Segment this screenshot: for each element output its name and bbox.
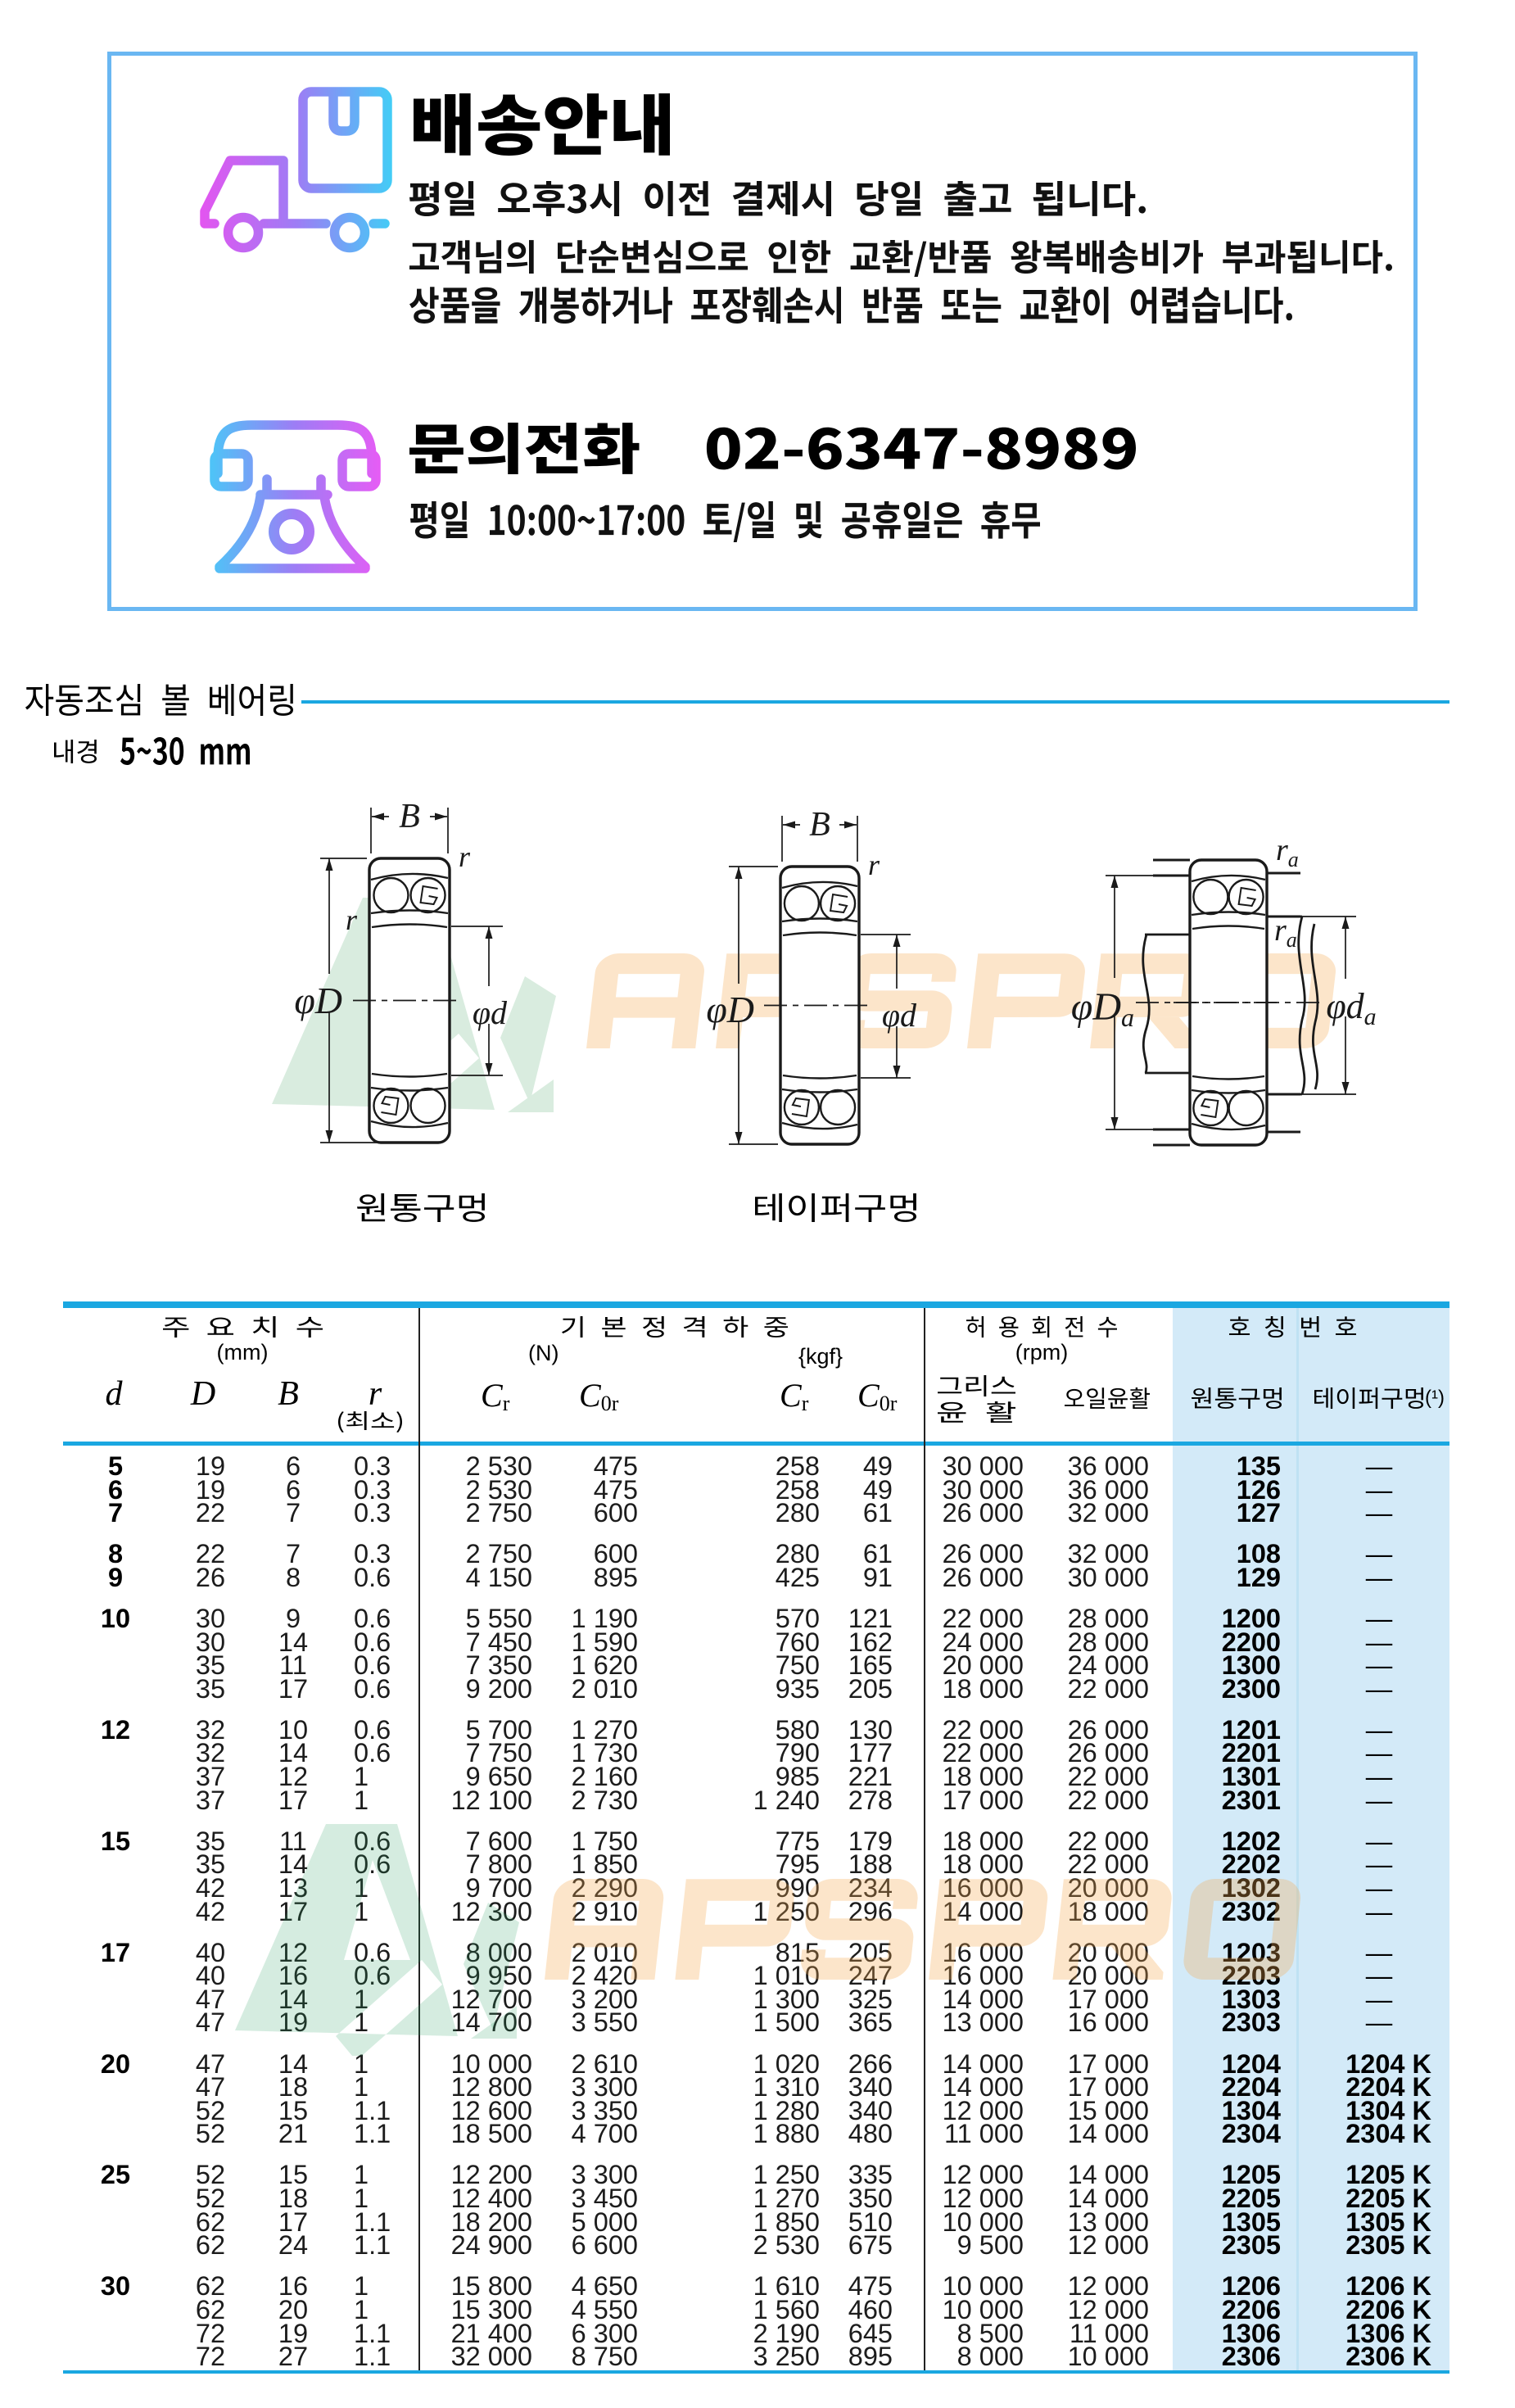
svg-text:ra: ra [1276,833,1299,871]
svg-text:r: r [459,840,471,873]
svg-text:φD: φD [294,980,342,1021]
svg-text:B: B [809,806,830,844]
svg-text:φD: φD [706,989,754,1030]
svg-text:ra: ra [1274,913,1297,952]
svg-text:r: r [346,903,358,936]
svg-text:φd: φd [882,997,917,1034]
svg-text:φd: φd [473,994,508,1031]
svg-text:φda: φda [1326,986,1376,1030]
svg-text:B: B [399,798,420,835]
svg-text:φDa: φDa [1071,985,1134,1032]
svg-text:r: r [868,849,880,881]
